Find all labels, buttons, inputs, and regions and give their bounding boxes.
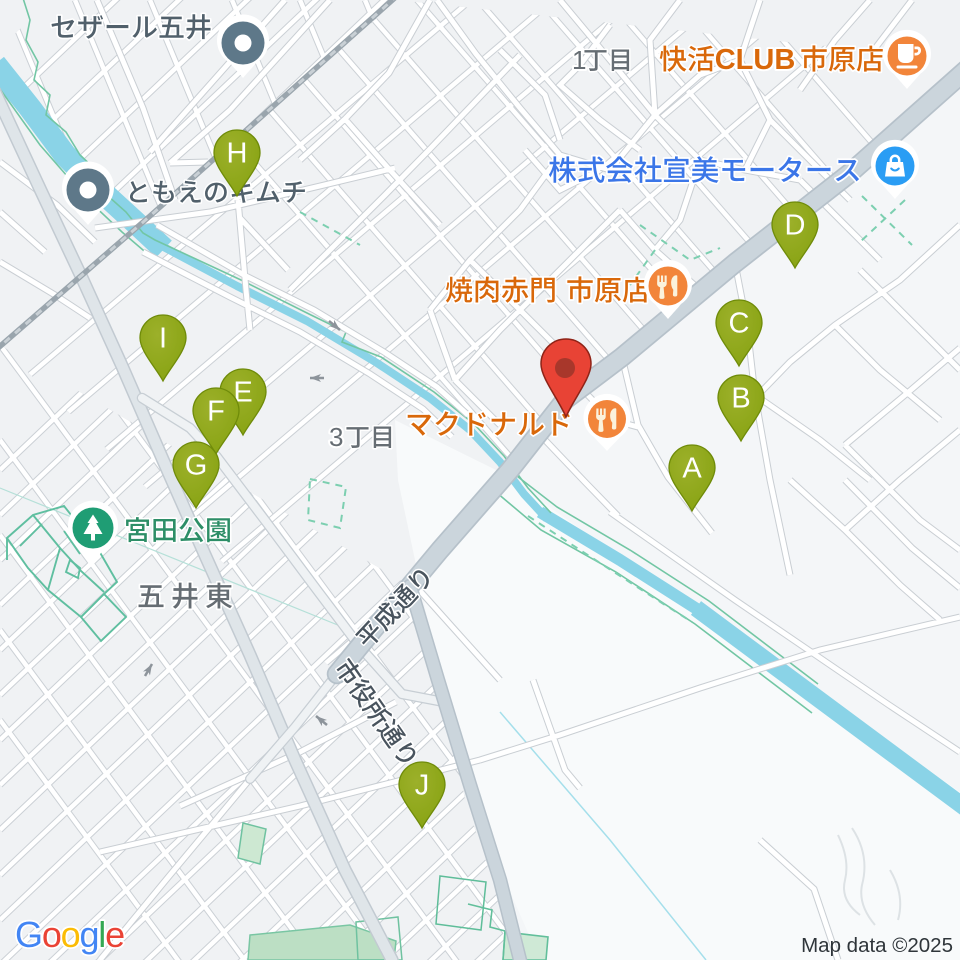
svg-text:B: B [731,383,750,415]
svg-text:CLUB: CLUB [715,44,796,76]
svg-text:C: C [729,308,750,340]
svg-text:1: 1 [572,45,586,75]
svg-text:Map data ©2025: Map data ©2025 [801,934,953,957]
svg-text:I: I [159,323,167,355]
svg-text:D: D [785,210,806,242]
svg-text:J: J [415,770,430,802]
svg-text:F: F [207,396,225,428]
svg-text:3: 3 [329,422,343,452]
svg-text:G: G [185,450,208,482]
svg-text:A: A [682,453,702,485]
svg-text:H: H [227,138,248,170]
svg-text:Google: Google [15,914,124,955]
